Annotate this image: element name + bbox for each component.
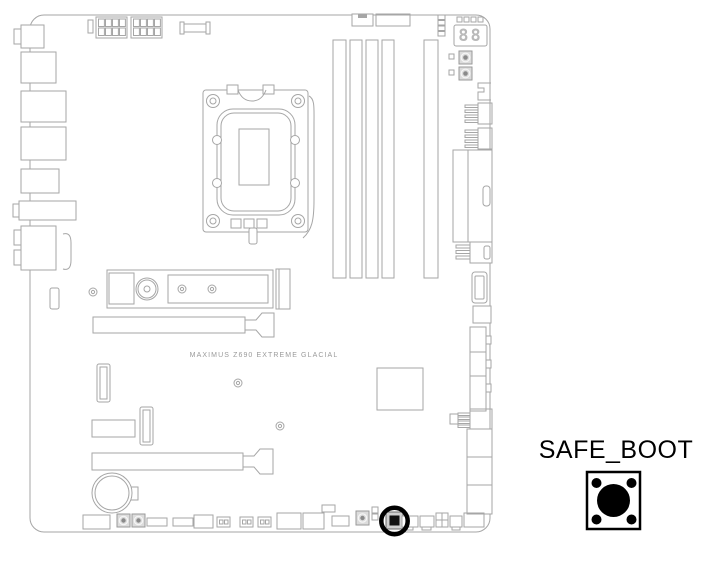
atx-power-connector (453, 150, 492, 242)
qcode-value: 88 (458, 26, 482, 46)
dimm2-slot (424, 40, 438, 278)
bottom-block-4 (420, 516, 434, 527)
bottom-button-3 (356, 511, 369, 525)
board-model-label: MAXIMUS Z690 EXTREME GLACIAL (190, 352, 339, 359)
bottom-block-3 (402, 516, 418, 527)
m2-heatsink (89, 269, 290, 309)
safe-boot-button-icon (587, 472, 640, 529)
bottom-block-2 (303, 513, 324, 529)
bottom-button-2 (132, 514, 145, 527)
bottom-jumper-3 (258, 517, 271, 527)
usb-front-header (472, 272, 487, 303)
safe-boot-label: SAFE_BOOT (539, 436, 694, 464)
bottom-block-5 (450, 516, 462, 527)
bottom-button-1 (117, 514, 130, 527)
cpu-socket (203, 85, 314, 244)
bottom-grid-header (436, 513, 448, 527)
motherboard-layout-figure: 88 (0, 0, 711, 569)
bottom-block-1 (277, 513, 301, 529)
chipset-block (377, 368, 423, 410)
safe-boot-onboard-button (386, 512, 403, 529)
right-edge-slot-block (467, 429, 492, 514)
safe-boot-callout: SAFE_BOOT (539, 436, 694, 529)
right-square-block (473, 306, 491, 323)
bottom-jumper-2 (240, 517, 253, 527)
top-header-block (352, 14, 373, 26)
bottom-jumper-1 (217, 517, 230, 527)
motherboard-diagram: 88 (0, 0, 711, 569)
